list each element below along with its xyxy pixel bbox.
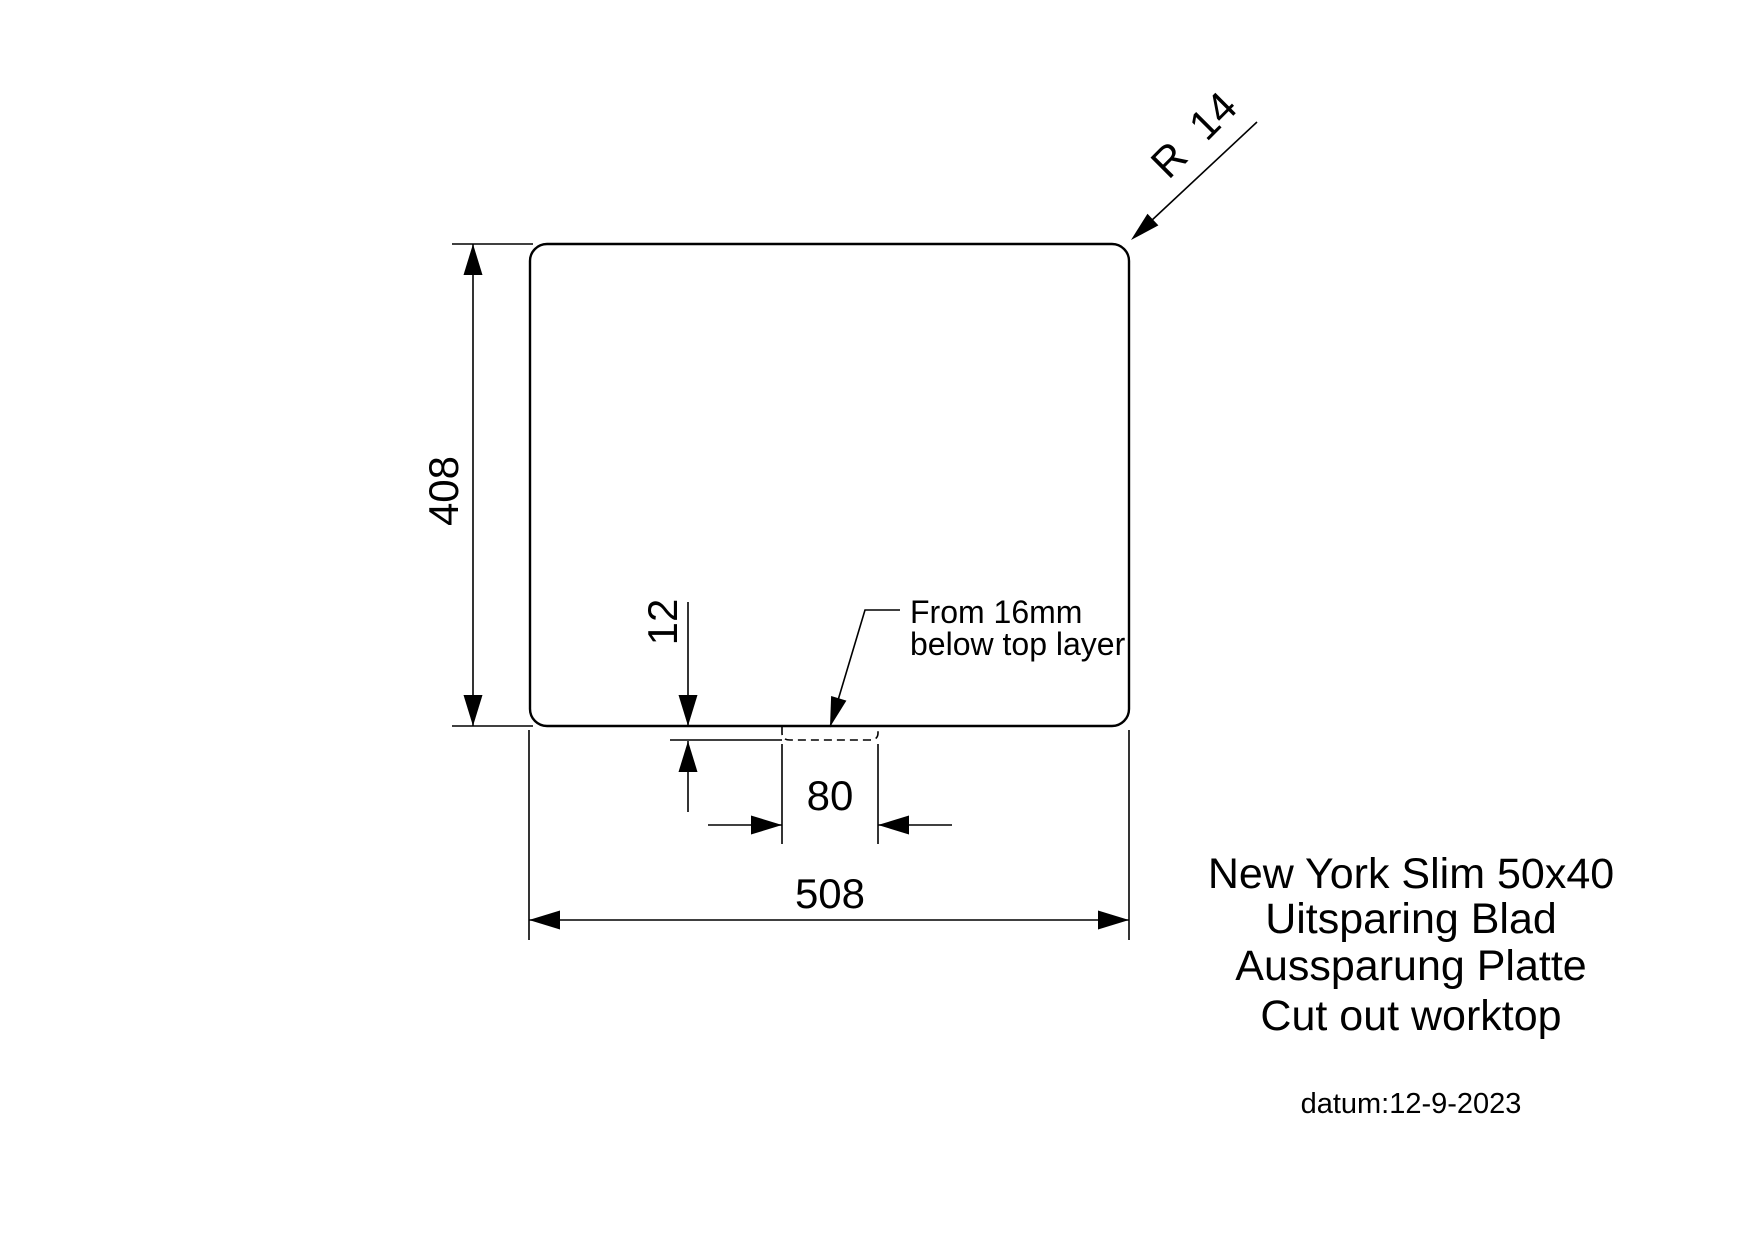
dim-height-arrow-down — [464, 695, 483, 726]
title-en: Cut out worktop — [1260, 992, 1561, 1040]
title-block: New York Slim 50x40 Uitsparing Blad Auss… — [1208, 850, 1614, 1120]
leader-note-arrow — [822, 696, 846, 729]
recess-notch-dashed-outline — [782, 727, 878, 740]
leader-note-text-line2: below top layer — [910, 626, 1126, 662]
dim-width-value: 508 — [795, 870, 865, 917]
title-de: Aussparung Platte — [1235, 942, 1586, 990]
leader-note-text-line1: From 16mm — [910, 594, 1082, 630]
title-product: New York Slim 50x40 — [1208, 850, 1614, 898]
dim-height-arrow-up — [464, 244, 483, 275]
dim-notch-arrow-right — [751, 816, 782, 835]
leader-note: From 16mm below top layer — [822, 594, 1125, 729]
dim-width-arrow-right — [1098, 911, 1129, 930]
dim-depth-arrow-up — [679, 741, 698, 772]
technical-drawing-sheet: 408 508 12 80 — [0, 0, 1754, 1240]
dim-depth-arrow-down — [679, 695, 698, 726]
leader-radius: R 14 — [1126, 83, 1257, 246]
title-nl: Uitsparing Blad — [1265, 895, 1557, 943]
dim-notch-arrow-left — [878, 816, 909, 835]
dim-height-value: 408 — [420, 456, 467, 526]
dim-notch-value: 80 — [807, 772, 854, 819]
cutout-drawing: 408 508 12 80 — [0, 0, 1754, 1240]
title-date: datum:12-9-2023 — [1301, 1088, 1522, 1120]
dim-width-arrow-left — [529, 911, 560, 930]
dim-depth-value: 12 — [639, 599, 686, 646]
corner-radius-value: R 14 — [1142, 83, 1246, 187]
